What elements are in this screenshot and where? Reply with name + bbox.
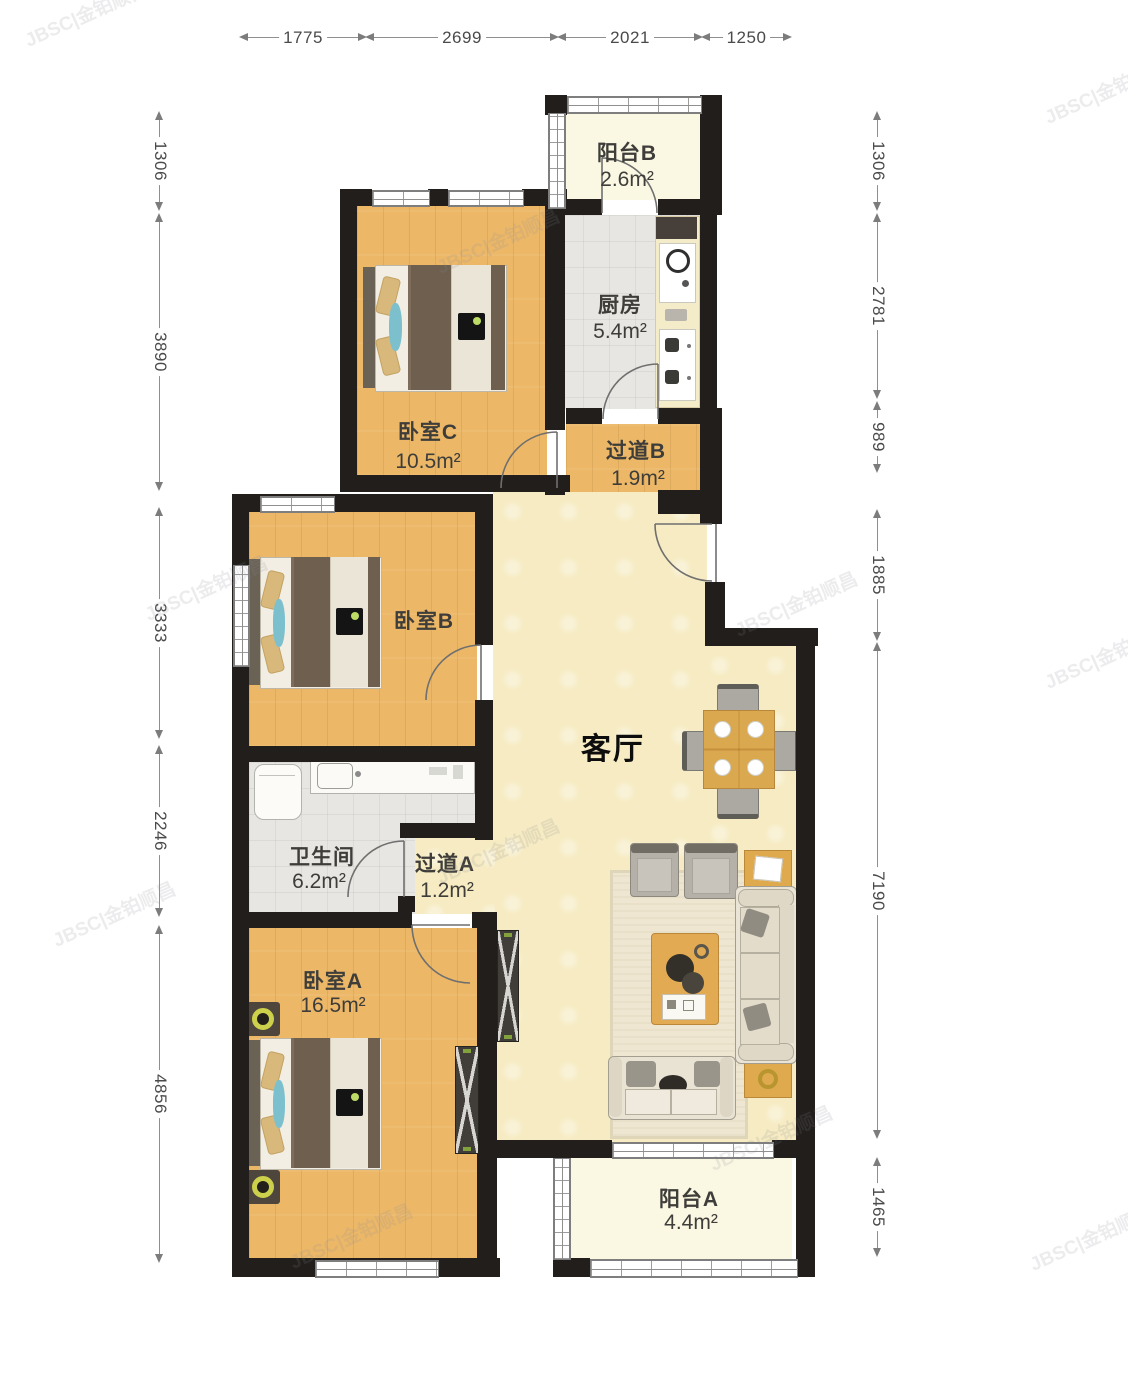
coffee-table: [651, 933, 719, 1025]
knob: [687, 376, 691, 380]
wall: [340, 475, 570, 492]
back-cushion: [694, 1061, 720, 1087]
label-kitchen: 厨房: [598, 289, 642, 319]
bed-foot: [368, 1038, 380, 1168]
counter-accessory: [429, 767, 447, 775]
sofa-armrest: [720, 1057, 733, 1117]
label-bedroom-c-area: 10.5m²: [395, 450, 460, 474]
dim-left-2246: 2246: [152, 746, 168, 916]
wall: [553, 1258, 590, 1277]
bed-runner: [389, 303, 402, 351]
wall: [566, 408, 602, 424]
dim-value: 2246: [150, 807, 170, 855]
plate: [747, 759, 764, 776]
decor-ring: [758, 1069, 778, 1089]
bed-foot: [368, 557, 380, 687]
bathroom-counter: [310, 758, 475, 794]
dim-value: 2021: [606, 28, 654, 48]
window-balcony-a-left: [553, 1158, 571, 1260]
dim-value: 1465: [868, 1183, 888, 1231]
dim-value: 1306: [868, 137, 888, 185]
dim-value: 4856: [150, 1070, 170, 1118]
floor-plan: 阳台B 2.6m² 厨房 5.4m² 卧室C 10.5m² 过道B 1.9m² …: [0, 0, 1128, 1380]
label-hallway-a: 过道A: [415, 848, 475, 878]
range-hood: [656, 217, 697, 239]
wall: [475, 494, 493, 645]
bed-bedroom-a: [249, 1038, 380, 1168]
dim-right-7190: 7190: [870, 643, 886, 1138]
tv-tray: [336, 1089, 363, 1116]
watermark: JBSC|金铂顺昌: [20, 0, 152, 53]
wall: [232, 762, 249, 912]
dining-chair: [717, 787, 759, 819]
wall: [705, 628, 818, 646]
plant-pot: [682, 972, 704, 994]
label-bedroom-b: 卧室B: [394, 605, 454, 635]
bed-foot: [491, 265, 505, 390]
wall: [658, 408, 722, 424]
dim-right-989: 989: [870, 402, 886, 472]
label-bathroom-area: 6.2m²: [292, 870, 346, 894]
label-kitchen-area: 5.4m²: [593, 320, 647, 344]
burner: [665, 370, 679, 384]
back-cushion: [626, 1061, 656, 1087]
seat-cushion: [671, 1089, 717, 1115]
label-hallway-a-area: 1.2m²: [420, 879, 474, 903]
wall: [658, 199, 722, 215]
dim-value: 7190: [868, 867, 888, 915]
sofa-cushion: [740, 953, 780, 999]
sink-basin: [666, 249, 690, 273]
basin-faucet: [355, 771, 361, 777]
book: [753, 856, 783, 883]
dim-value: 3333: [150, 599, 170, 647]
washing-machine: [254, 764, 302, 820]
label-balcony-b: 阳台B: [597, 137, 657, 167]
armchair-cushion: [637, 858, 672, 892]
window-bedroom-c: [372, 190, 430, 207]
dim-value: 3890: [150, 328, 170, 376]
tray: [662, 994, 706, 1020]
dim-value: 989: [868, 418, 888, 456]
wall: [796, 646, 815, 1277]
wall: [232, 746, 493, 762]
bed-throw: [451, 265, 492, 390]
label-bedroom-c: 卧室C: [398, 416, 458, 446]
tv-light: [473, 317, 481, 325]
dining-table: [703, 710, 775, 789]
bed-throw: [330, 557, 369, 687]
counter-accessory: [453, 765, 463, 779]
plate: [714, 759, 731, 776]
sliding-door-balcony-a: [612, 1142, 774, 1159]
sofa-armrest: [738, 1043, 794, 1061]
headboard: [249, 1040, 260, 1166]
armchair-cushion: [692, 858, 730, 894]
blanket: [291, 1038, 333, 1168]
blanket: [291, 557, 333, 687]
dim-left-3890: 3890: [152, 214, 168, 490]
armchair: [684, 843, 738, 899]
watermark: JBSC|金铂顺昌: [1040, 51, 1128, 129]
label-hallway-b: 过道B: [606, 435, 666, 465]
armchair-back: [685, 844, 737, 853]
plate: [747, 721, 764, 738]
tv-tray: [336, 608, 363, 635]
dim-value: 2781: [868, 282, 888, 330]
window-bedroom-b-top: [260, 496, 335, 513]
dim-value: 1885: [868, 551, 888, 599]
dim-value: 1775: [279, 28, 327, 48]
dim-left-3333: 3333: [152, 508, 168, 738]
bed-throw: [330, 1038, 369, 1168]
tray-item: [667, 1000, 676, 1009]
nightstand: [246, 1170, 280, 1204]
plate: [714, 721, 731, 738]
radiator-living-room: [497, 930, 519, 1042]
armchair: [630, 843, 679, 897]
side-table: [744, 850, 792, 889]
window-balcony-b-left: [548, 113, 566, 209]
sofa-loveseat: [608, 1056, 736, 1120]
bed-runner: [273, 599, 285, 647]
watermark: JBSC|金铂顺昌: [1025, 1198, 1128, 1276]
bed-bedroom-c: [363, 265, 505, 390]
wall: [772, 1140, 796, 1158]
burner: [665, 338, 679, 352]
dim-value: 1306: [150, 137, 170, 185]
wall: [545, 95, 567, 115]
label-hallway-b-area: 1.9m²: [611, 467, 665, 491]
wall: [700, 215, 717, 424]
dim-right-1465: 1465: [870, 1158, 886, 1256]
dim-right-1885: 1885: [870, 510, 886, 640]
counter-item: [665, 309, 687, 321]
wall: [705, 582, 725, 630]
wall: [398, 896, 415, 912]
radiator-bedroom-a: [455, 1046, 479, 1154]
window-bedroom-b-left: [233, 565, 250, 667]
seat-cushion: [625, 1089, 671, 1115]
dim-top-1250: 1250: [702, 30, 791, 46]
tray-item: [683, 1000, 694, 1011]
dim-top-2699: 2699: [366, 30, 558, 46]
label-bedroom-a-area: 16.5m²: [300, 994, 365, 1018]
stove: [659, 329, 696, 401]
wall: [700, 95, 722, 215]
label-balcony-a-area: 4.4m²: [664, 1211, 718, 1235]
label-bathroom: 卫生间: [289, 841, 355, 871]
dim-value: 2699: [438, 28, 486, 48]
dim-right-1306: 1306: [870, 112, 886, 210]
wall: [428, 189, 448, 206]
headboard: [249, 559, 260, 685]
wall: [658, 490, 722, 514]
wall: [340, 189, 357, 492]
tv-light: [351, 612, 359, 620]
label-bedroom-a: 卧室A: [303, 965, 363, 995]
blanket: [408, 265, 454, 390]
cup: [694, 944, 709, 959]
kitchen-sink: [659, 243, 696, 303]
wall: [232, 912, 249, 1277]
side-table: [744, 1060, 792, 1098]
sofa-back: [778, 905, 794, 1043]
window-bedroom-c: [448, 190, 524, 207]
wall: [400, 823, 483, 838]
faucet: [682, 280, 689, 287]
sofa-l: [735, 886, 797, 1064]
bed-runner: [273, 1080, 285, 1128]
knob: [687, 344, 691, 348]
wall: [545, 1140, 572, 1158]
armchair-back: [631, 844, 678, 853]
headboard: [363, 267, 375, 388]
nightstand: [246, 1002, 280, 1036]
tv-tray: [458, 313, 485, 340]
dim-value: 1250: [723, 28, 771, 48]
wall: [475, 700, 493, 840]
label-balcony-b-area: 2.6m²: [600, 168, 654, 192]
wall: [477, 912, 497, 1277]
window-bedroom-a: [315, 1260, 439, 1278]
dim-top-1775: 1775: [240, 30, 366, 46]
label-balcony-a: 阳台A: [659, 1183, 719, 1213]
dim-left-4856: 4856: [152, 926, 168, 1262]
wall: [232, 912, 412, 928]
watermark: JBSC|金铂顺昌: [1040, 616, 1128, 694]
kitchen-counter: [655, 216, 700, 408]
dim-left-1306: 1306: [152, 112, 168, 210]
sofa-armrest: [609, 1057, 622, 1117]
washer-lid-line: [259, 775, 295, 776]
basin: [317, 763, 353, 789]
lamp: [252, 1176, 274, 1198]
dim-top-2021: 2021: [558, 30, 702, 46]
tv-light: [351, 1093, 359, 1101]
lamp: [252, 1008, 274, 1030]
window-balcony-b-top: [567, 96, 702, 114]
bed-bedroom-b: [249, 557, 380, 687]
dim-right-2781: 2781: [870, 214, 886, 398]
window-balcony-a-bottom: [590, 1259, 798, 1278]
wall: [545, 199, 565, 430]
label-living-room: 客厅: [581, 724, 645, 768]
